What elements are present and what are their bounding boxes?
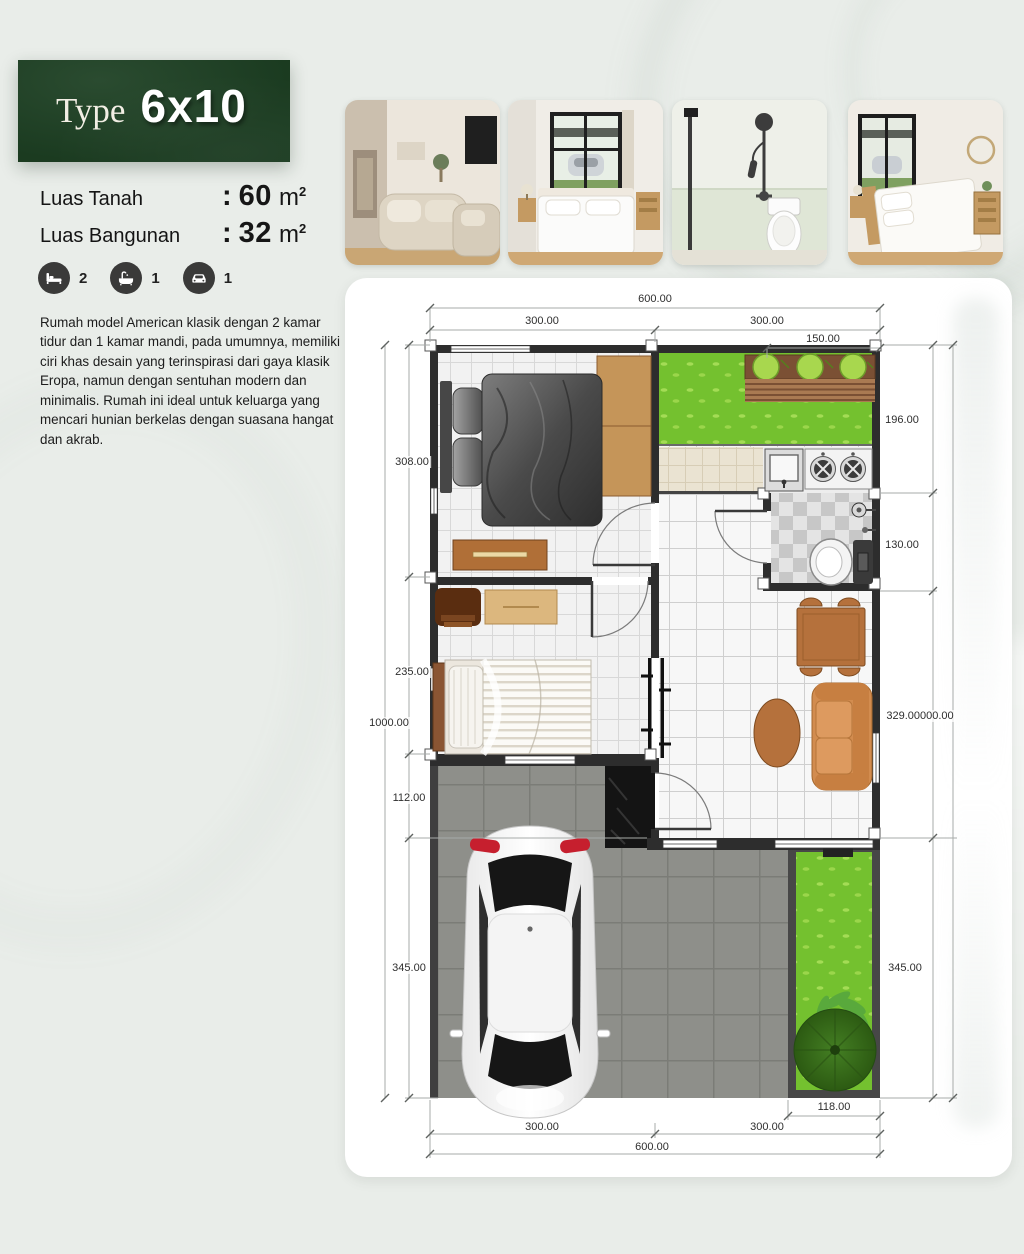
garden-planter bbox=[745, 354, 875, 402]
type-value: 6x10 bbox=[140, 79, 246, 133]
gallery-photo-bathroom bbox=[672, 100, 827, 265]
land-area-value: 60 bbox=[239, 180, 272, 213]
land-area-label: Luas Tanah bbox=[40, 188, 222, 211]
dim-left-seg1: 308.00 bbox=[393, 456, 431, 468]
bedroom-count: 2 bbox=[79, 270, 87, 287]
land-area-row: Luas Tanah : 60 m2 bbox=[40, 180, 340, 217]
dim-top-total: 600.00 bbox=[636, 293, 674, 305]
gallery-photo-living-room bbox=[345, 100, 500, 265]
bathroom-count: 1 bbox=[151, 270, 159, 287]
gallery-photo-bedroom-second bbox=[848, 100, 1003, 265]
dim-bottom-right: 300.00 bbox=[748, 1121, 786, 1133]
bathtub-icon bbox=[110, 262, 142, 294]
dim-right-seg3: 329.00000.00 bbox=[884, 710, 955, 722]
second-bedroom-photo-illustration bbox=[848, 100, 1003, 265]
dim-left-seg2: 235.00 bbox=[393, 666, 431, 678]
land-area-unit: m2 bbox=[279, 184, 306, 212]
car-top-view bbox=[450, 826, 610, 1118]
dim-right-seg2: 130.00 bbox=[883, 539, 921, 551]
building-area-value: 32 bbox=[239, 217, 272, 250]
building-area-unit: m2 bbox=[279, 221, 306, 249]
dim-left-total: 1000.00 bbox=[367, 717, 411, 729]
gallery-photo-bedroom-window bbox=[508, 100, 663, 265]
building-area-colon: : bbox=[222, 217, 232, 250]
dim-bottom-left: 300.00 bbox=[523, 1121, 561, 1133]
dim-right-seg1: 196.00 bbox=[883, 414, 921, 426]
entry-mat bbox=[605, 766, 655, 848]
living-room-photo-illustration bbox=[345, 100, 500, 265]
kitchen-fixtures bbox=[765, 449, 872, 491]
description-text: Rumah model American klasik dengan 2 kam… bbox=[40, 313, 342, 449]
dining-set bbox=[797, 598, 865, 676]
building-area-label: Luas Bangunan bbox=[40, 225, 222, 248]
dim-bottom-total: 600.00 bbox=[633, 1141, 671, 1153]
bedroom-photo-illustration bbox=[508, 100, 663, 265]
dim-left-seg3: 112.00 bbox=[391, 792, 428, 804]
car-icon bbox=[183, 262, 215, 294]
amenities-row: 2 1 1 bbox=[38, 262, 246, 294]
type-title-panel: Type 6x10 bbox=[18, 60, 290, 162]
bathroom-photo-illustration bbox=[672, 100, 827, 265]
dim-bottom-sub: 118.00 bbox=[816, 1101, 853, 1113]
dim-top-right: 300.00 bbox=[748, 315, 786, 327]
bed-icon bbox=[38, 262, 70, 294]
building-area-row: Luas Bangunan : 32 m2 bbox=[40, 217, 340, 254]
floorplan-card: 600.00 300.00 300.00 150.00 308.00 235.0… bbox=[345, 278, 1012, 1177]
area-specs: Luas Tanah : 60 m2 Luas Bangunan : 32 m2 bbox=[40, 180, 340, 254]
carport-count: 1 bbox=[224, 270, 232, 287]
flyer-page: Type 6x10 Luas Tanah : 60 m2 Luas Bangun… bbox=[0, 0, 1024, 1254]
dim-left-seg4: 345.00 bbox=[390, 962, 428, 974]
dim-top-sub: 150.00 bbox=[804, 333, 842, 345]
type-label: Type bbox=[56, 60, 125, 162]
dim-right-seg4: 345.00 bbox=[886, 962, 924, 974]
dim-top-left: 300.00 bbox=[523, 315, 561, 327]
land-area-colon: : bbox=[222, 180, 232, 213]
floorplan-drawing bbox=[345, 278, 1012, 1177]
